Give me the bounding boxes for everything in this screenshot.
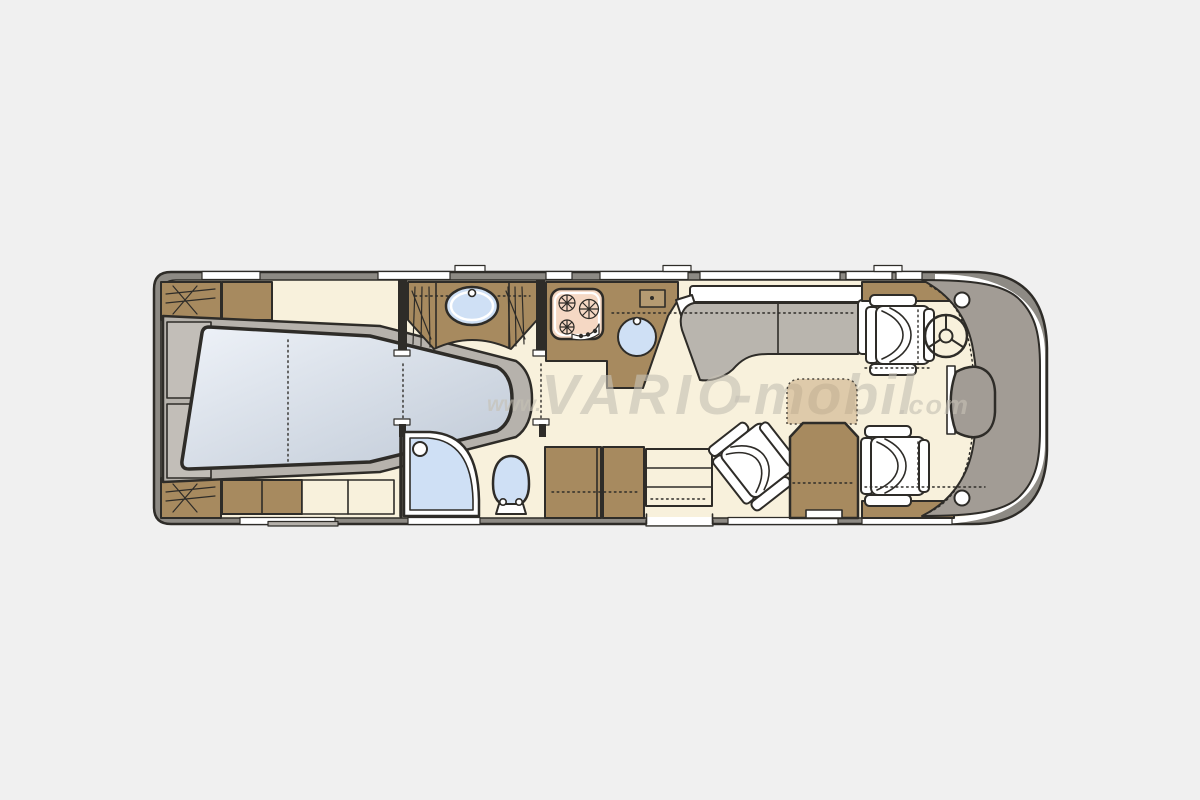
washbasin: [446, 287, 498, 325]
burner-icon: [580, 300, 599, 319]
wardrobe-top-left: [161, 282, 221, 320]
faucet-icon: [469, 290, 476, 297]
wardrobe-bottom-left: [161, 478, 221, 518]
dresser-bottom: [222, 480, 302, 514]
watermark-brand: VARIO: [541, 363, 747, 427]
passenger-seat: [861, 426, 929, 506]
speaker-icon: [955, 293, 970, 308]
cabinet-bottom: [302, 480, 394, 514]
cooktop: [551, 289, 603, 340]
cabinet-top-left: [222, 282, 272, 320]
watermark-domain: .com: [899, 390, 970, 420]
sofa-backrest: [690, 286, 866, 302]
burner-icon: [560, 320, 574, 334]
toilet: [493, 456, 529, 514]
floorplan-svg: www. VARIO -mobil .com: [0, 0, 1200, 800]
skirt-mark: [268, 522, 338, 527]
entry-door-opening[interactable]: [647, 517, 712, 525]
watermark-prefix: www.: [487, 393, 541, 416]
tall-cabinet: [545, 447, 601, 518]
faucet-icon: [634, 318, 641, 325]
table: [790, 423, 858, 518]
table-extension: [787, 379, 857, 424]
table-base: [806, 510, 842, 518]
speaker-icon: [955, 491, 970, 506]
sink-cover: [640, 290, 665, 307]
drain-icon: [413, 442, 427, 456]
dinette-table: [787, 379, 858, 518]
kitchen-sink: [618, 318, 656, 357]
watermark: www. VARIO -mobil .com: [487, 363, 970, 427]
cabinet: [603, 447, 644, 518]
page-background: www. VARIO -mobil .com: [0, 0, 1200, 800]
burner-icon: [559, 295, 575, 311]
